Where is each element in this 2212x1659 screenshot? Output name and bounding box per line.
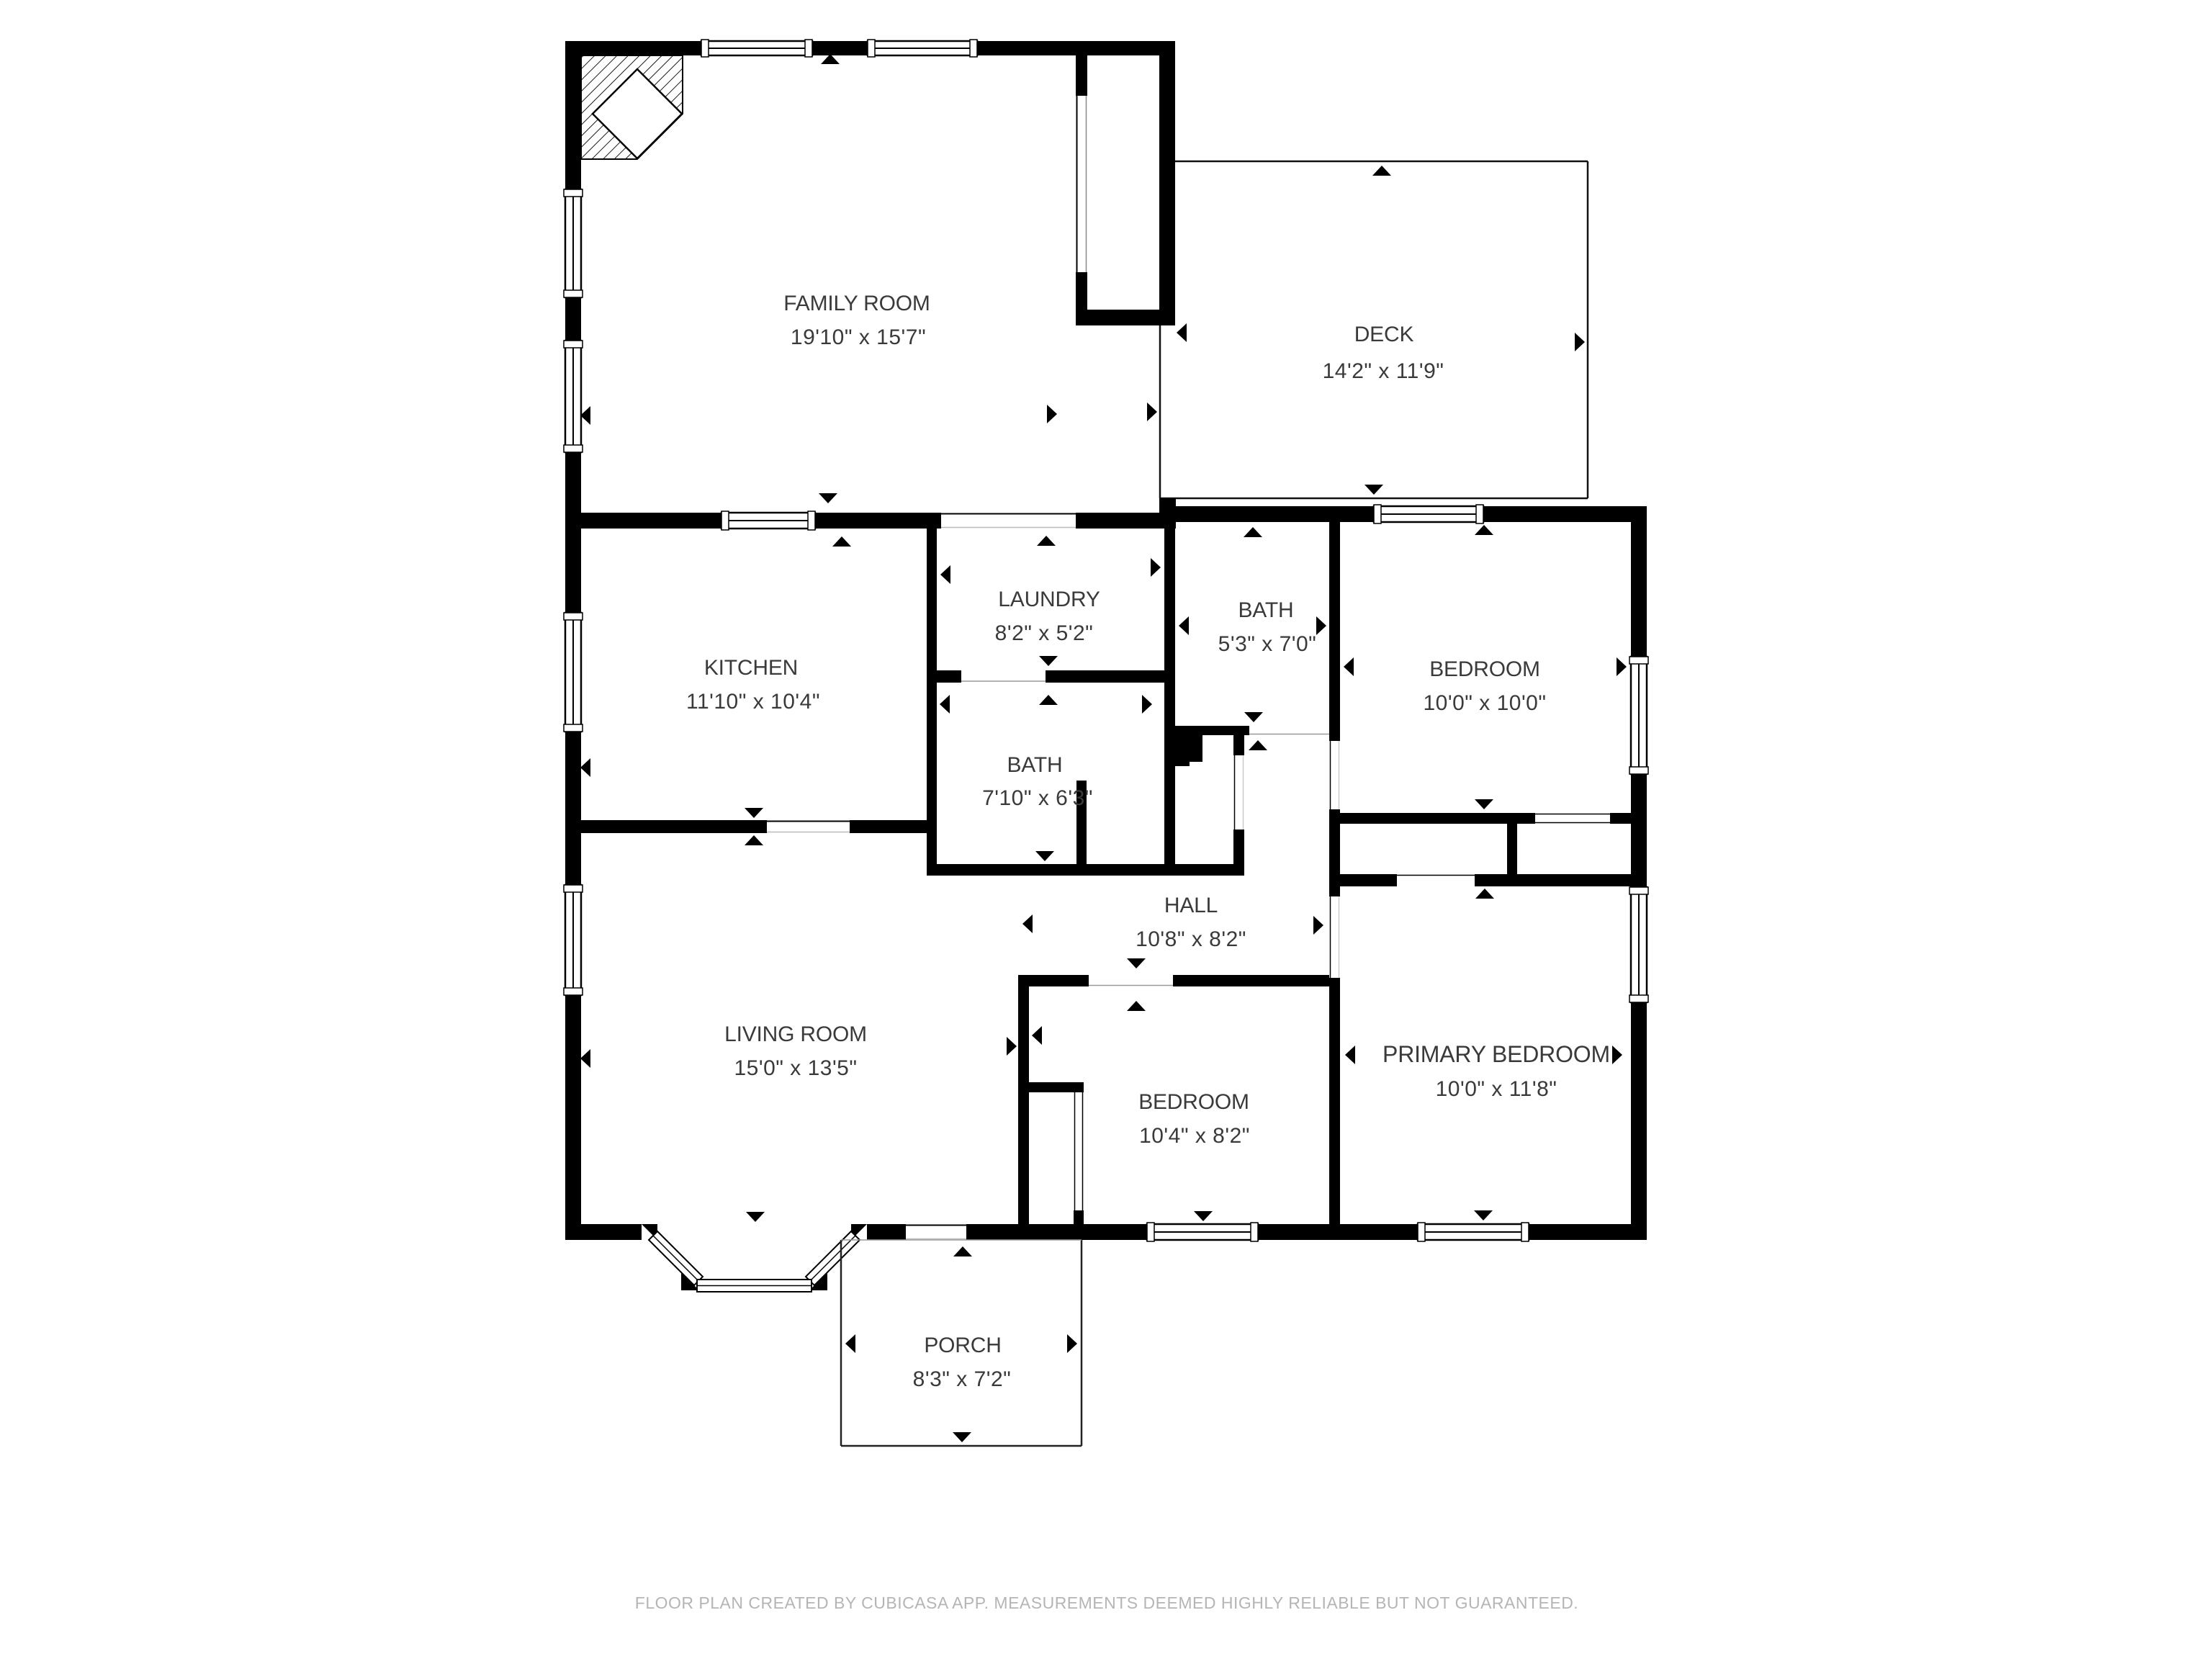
svg-text:14'2" x 11'9": 14'2" x 11'9" (1323, 359, 1444, 383)
svg-text:11'10" x 10'4": 11'10" x 10'4" (686, 690, 820, 714)
svg-text:5'3" x 7'0": 5'3" x 7'0" (1218, 632, 1317, 656)
svg-text:19'10" x 15'7": 19'10" x 15'7" (791, 325, 926, 349)
svg-text:BEDROOM: BEDROOM (1138, 1090, 1249, 1114)
svg-text:HALL: HALL (1164, 894, 1218, 917)
svg-text:LAUNDRY: LAUNDRY (998, 588, 1100, 611)
svg-text:PORCH: PORCH (924, 1334, 1001, 1357)
svg-text:DECK: DECK (1354, 323, 1414, 346)
svg-text:BATH: BATH (1007, 753, 1063, 777)
svg-text:10'0" x 11'8": 10'0" x 11'8" (1436, 1077, 1557, 1101)
svg-text:10'4" x 8'2": 10'4" x 8'2" (1139, 1124, 1250, 1148)
svg-text:FLOOR PLAN CREATED BY CUBICASA: FLOOR PLAN CREATED BY CUBICASA APP. MEAS… (635, 1593, 1578, 1612)
svg-text:KITCHEN: KITCHEN (704, 656, 798, 680)
svg-text:LIVING ROOM: LIVING ROOM (724, 1022, 867, 1046)
svg-text:BEDROOM: BEDROOM (1429, 657, 1540, 681)
svg-text:10'8" x 8'2": 10'8" x 8'2" (1136, 927, 1246, 951)
svg-text:BATH: BATH (1238, 598, 1294, 622)
svg-text:8'2" x 5'2": 8'2" x 5'2" (995, 621, 1094, 645)
svg-text:8'3" x 7'2": 8'3" x 7'2" (913, 1367, 1012, 1391)
svg-text:15'0" x 13'5": 15'0" x 13'5" (734, 1056, 857, 1080)
svg-text:PRIMARY BEDROOM: PRIMARY BEDROOM (1382, 1041, 1610, 1067)
svg-text:10'0" x 10'0": 10'0" x 10'0" (1423, 691, 1546, 715)
svg-text:FAMILY ROOM: FAMILY ROOM (783, 292, 930, 315)
svg-text:7'10" x 6'3": 7'10" x 6'3" (982, 786, 1093, 810)
